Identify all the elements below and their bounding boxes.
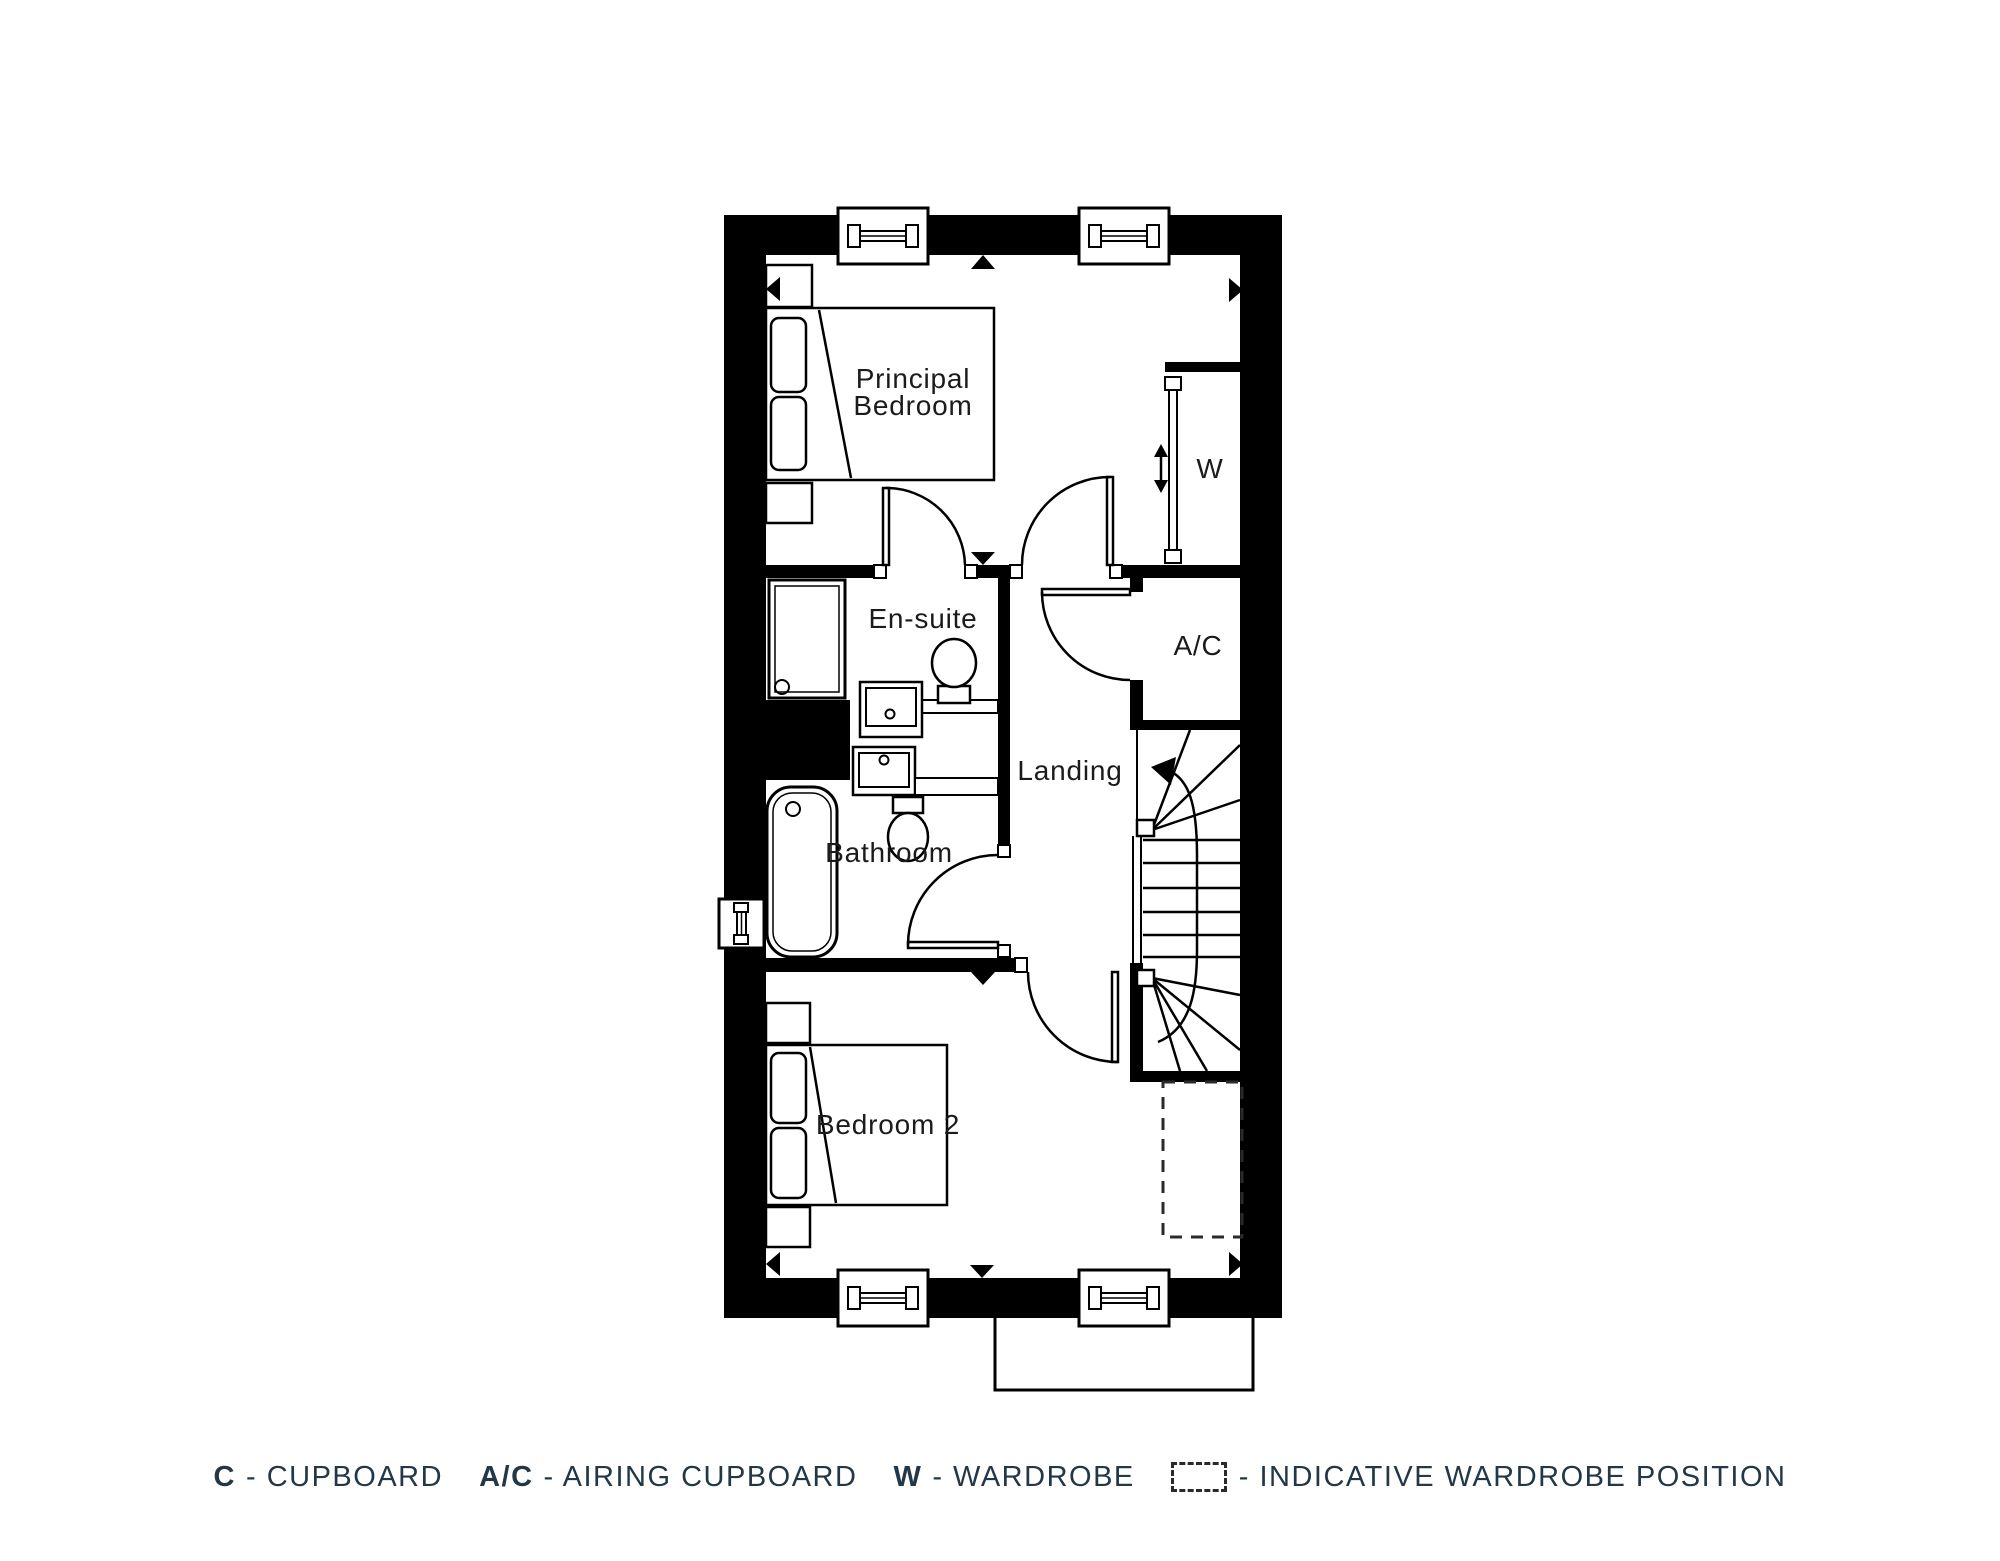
- bath-icon: [767, 787, 837, 957]
- wardrobe-sliding-door-icon: [1154, 377, 1181, 563]
- legend: C - CUPBOARD A/C - AIRING CUPBOARD W - W…: [0, 1452, 2000, 1502]
- door-icon: [883, 488, 965, 565]
- dimension-arrow-icon: [971, 255, 995, 269]
- floorplan-drawing: Principal Bedroom W En-suite A/C Landing…: [0, 0, 2000, 1561]
- legend-item-wardrobe: W - WARDROBE: [893, 1461, 1134, 1494]
- legend-item-indicative-wardrobe: - INDICATIVE WARDROBE POSITION: [1171, 1461, 1787, 1494]
- label-ensuite: En-suite: [868, 603, 977, 634]
- window-icon: [838, 1270, 928, 1326]
- counter: [915, 778, 998, 795]
- dimension-arrow-icon: [971, 552, 995, 565]
- dashed-wardrobe-icon: [1163, 1082, 1242, 1237]
- label-bathroom: Bathroom: [825, 837, 953, 868]
- legend-desc: - INDICATIVE WARDROBE POSITION: [1239, 1461, 1787, 1494]
- legend-item-airing-cupboard: A/C - AIRING CUPBOARD: [479, 1461, 857, 1494]
- window-icon: [719, 899, 764, 948]
- window-icon: [1079, 208, 1169, 264]
- porch-outline: [995, 1318, 1253, 1390]
- dimension-arrow-icon: [970, 1265, 994, 1278]
- dimension-arrow-icon: [766, 1252, 780, 1276]
- legend-desc: - CUPBOARD: [246, 1461, 443, 1494]
- shower-icon: [769, 580, 845, 698]
- label-wardrobe: W: [1196, 453, 1223, 484]
- legend-item-cupboard: C - CUPBOARD: [214, 1461, 444, 1494]
- window-icon: [1079, 1270, 1169, 1326]
- label-landing: Landing: [1017, 755, 1122, 786]
- label-airing-cupboard: A/C: [1173, 630, 1222, 661]
- door-icon: [1042, 589, 1130, 680]
- stairs-icon: [1133, 730, 1240, 1071]
- dimension-arrow-icon: [766, 277, 780, 301]
- door-icon: [1022, 477, 1113, 565]
- legend-key: W: [893, 1461, 922, 1494]
- legend-desc: - AIRING CUPBOARD: [544, 1461, 858, 1494]
- sink-icon: [860, 682, 922, 737]
- sink-icon: [853, 747, 915, 795]
- legend-key: A/C: [479, 1461, 533, 1494]
- door-icon: [1028, 972, 1118, 1062]
- dashed-wardrobe-box-icon: [1171, 1462, 1227, 1492]
- window-icon: [838, 208, 928, 264]
- toilet-icon: [932, 639, 976, 703]
- floorplan-page: Principal Bedroom W En-suite A/C Landing…: [0, 0, 2000, 1561]
- label-bedroom2: Bedroom 2: [816, 1109, 960, 1140]
- legend-desc: - WARDROBE: [932, 1461, 1134, 1494]
- label-principal-bedroom-line2: Bedroom: [853, 390, 972, 421]
- dimension-arrow-icon: [971, 972, 995, 985]
- door-icon: [908, 855, 998, 948]
- legend-key: C: [214, 1461, 236, 1494]
